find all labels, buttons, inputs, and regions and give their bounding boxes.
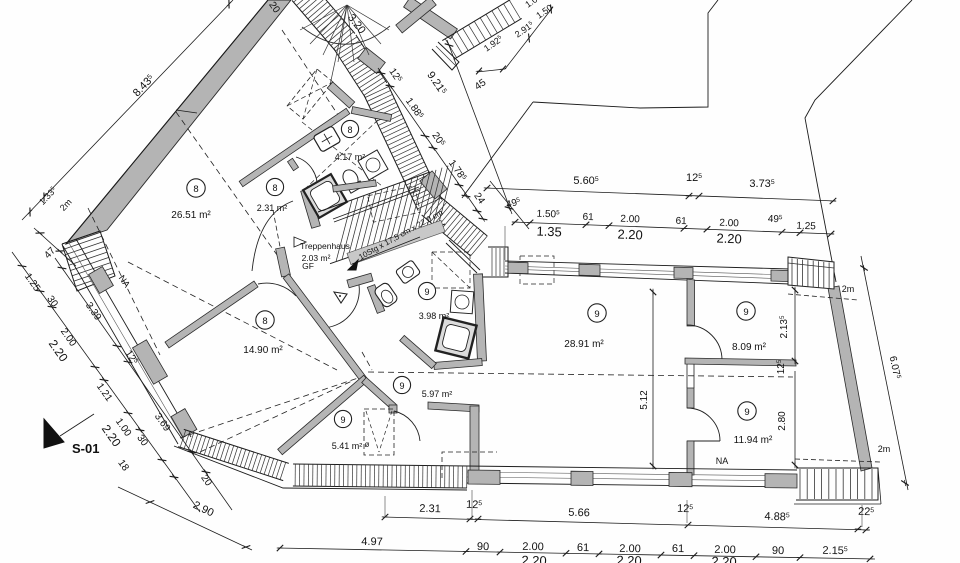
svg-text:61: 61 [672,543,684,555]
svg-text:ø: ø [365,440,370,449]
svg-text:2.20: 2.20 [711,554,737,563]
svg-text:2.20: 2.20 [716,231,742,247]
svg-text:2m: 2m [842,284,855,294]
svg-text:1.35: 1.35 [536,224,562,240]
svg-text:2.80: 2.80 [777,411,788,431]
svg-text:2.20: 2.20 [616,553,642,563]
svg-text:3.98 m²: 3.98 m² [419,311,450,321]
svg-text:4.97: 4.97 [361,536,383,548]
svg-text:5.97 m²: 5.97 m² [422,389,453,399]
svg-text:1.25: 1.25 [796,221,816,233]
svg-text:2.00: 2.00 [620,214,640,226]
svg-text:61: 61 [582,212,594,223]
svg-text:4.17 m²: 4.17 m² [335,152,366,162]
svg-text:9: 9 [340,415,345,425]
svg-text:8: 8 [262,316,267,327]
svg-text:8: 8 [193,184,198,195]
svg-text:8: 8 [347,125,352,135]
svg-text:61: 61 [675,216,687,227]
svg-text:NA: NA [716,456,729,466]
svg-text:8: 8 [272,183,277,193]
svg-text:5.41 m²: 5.41 m² [332,441,363,451]
svg-text:5.66: 5.66 [568,507,590,520]
svg-text:9: 9 [744,407,749,418]
svg-text:90: 90 [477,541,489,553]
svg-text:2.31: 2.31 [419,503,441,516]
svg-text:61: 61 [577,542,589,554]
svg-text:9: 9 [594,309,599,320]
svg-text:2.20: 2.20 [617,227,643,243]
svg-text:28.91 m²: 28.91 m² [564,339,604,350]
svg-text:2.31 m²: 2.31 m² [257,203,288,213]
svg-text:GF: GF [302,261,314,271]
svg-text:11.94 m²: 11.94 m² [734,435,773,446]
svg-text:Treppenhaus: Treppenhaus [300,241,350,251]
svg-text:5.12: 5.12 [639,390,650,410]
svg-text:26.51 m²: 26.51 m² [171,210,211,221]
svg-text:S-01: S-01 [72,441,99,456]
svg-text:2.20: 2.20 [521,553,547,563]
svg-text:9: 9 [399,381,404,391]
svg-text:2.00: 2.00 [522,541,544,553]
svg-text:90: 90 [772,545,784,557]
svg-text:2m: 2m [878,444,891,454]
svg-text:9: 9 [743,307,748,318]
svg-text:14.90 m²: 14.90 m² [243,345,283,356]
svg-text:2.00: 2.00 [719,218,739,230]
svg-text:8.09 m²: 8.09 m² [732,342,767,353]
svg-text:9: 9 [424,287,429,297]
